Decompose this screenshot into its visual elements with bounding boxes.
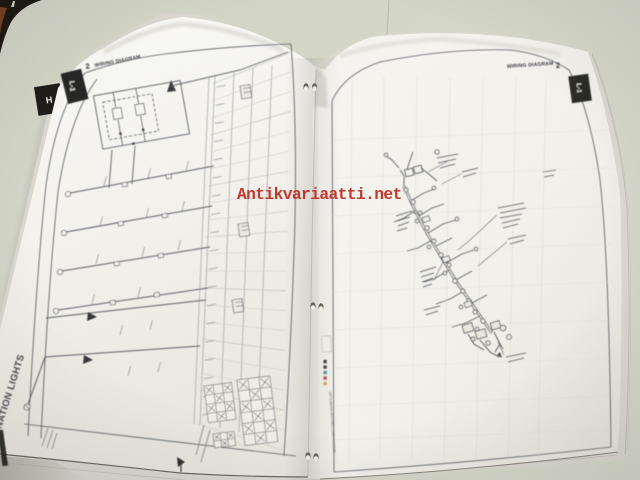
svg-text:Antikvariaatti.net: Antikvariaatti.net — [237, 185, 402, 204]
